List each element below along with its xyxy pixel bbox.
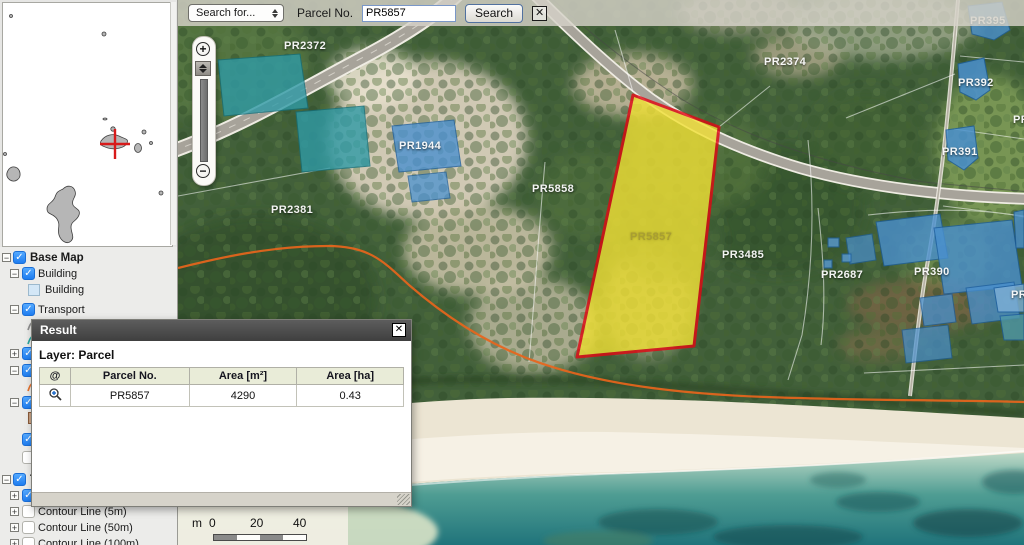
checkbox-checked[interactable]: ✓ bbox=[13, 473, 26, 486]
scale-unit: m bbox=[192, 516, 202, 530]
tree-label-building-legend: Building bbox=[45, 284, 84, 296]
parcel-label: PR3485 bbox=[722, 249, 764, 261]
result-titlebar[interactable]: Result ✕ bbox=[32, 320, 411, 341]
collapse-icon[interactable]: − bbox=[10, 398, 19, 407]
result-table: @ Parcel No. Area [m²] Area [ha] P bbox=[39, 367, 404, 407]
parcel-label: PR392 bbox=[958, 77, 994, 89]
seychelles-overview-svg bbox=[3, 3, 170, 244]
resize-grip-icon[interactable] bbox=[397, 494, 410, 505]
tree-label-contour-100m: Contour Line (100m) bbox=[38, 538, 139, 545]
checkbox-unchecked[interactable] bbox=[22, 537, 35, 545]
result-row: PR5857 4290 0.43 bbox=[40, 385, 404, 407]
parcel-label-clipped: PR bbox=[1011, 289, 1024, 301]
scale-tick: 20 bbox=[250, 516, 263, 530]
checkbox-checked[interactable]: ✓ bbox=[22, 267, 35, 280]
zoom-to-feature-cell[interactable] bbox=[40, 385, 71, 407]
result-layer-label: Layer: Parcel bbox=[39, 348, 404, 362]
parcel-label: PR391 bbox=[942, 146, 978, 158]
collapse-icon[interactable]: − bbox=[2, 475, 11, 484]
search-for-select[interactable]: Search for... bbox=[188, 4, 284, 22]
collapse-icon[interactable]: − bbox=[10, 305, 19, 314]
collapse-icon[interactable]: − bbox=[2, 253, 11, 262]
location-crosshair-icon bbox=[100, 129, 130, 159]
col-area-m2: Area [m²] bbox=[189, 368, 297, 385]
tree-label-contour-5m: Contour Line (5m) bbox=[38, 506, 127, 518]
close-search-icon[interactable]: ✕ bbox=[532, 6, 547, 21]
panel-scrollbar[interactable] bbox=[170, 2, 176, 245]
parcel-label: PR2374 bbox=[764, 56, 806, 68]
checkbox-checked[interactable]: ✓ bbox=[13, 251, 26, 264]
scale-tick: 0 bbox=[209, 516, 216, 530]
zoom-to-feature-icon[interactable] bbox=[48, 387, 62, 401]
collapse-icon[interactable]: − bbox=[10, 366, 19, 375]
result-area-ha: 0.43 bbox=[297, 385, 404, 407]
checkbox-unchecked[interactable] bbox=[22, 521, 35, 534]
zoom-slider-track[interactable] bbox=[200, 79, 208, 162]
tree-legend-building: Building bbox=[0, 283, 177, 298]
parcel-label: PR1944 bbox=[399, 140, 441, 152]
expand-icon[interactable]: + bbox=[10, 507, 19, 516]
zoom-slider: + − bbox=[192, 36, 216, 186]
result-area-m2: 4290 bbox=[189, 385, 297, 407]
parcel-no-label: Parcel No. bbox=[297, 6, 353, 20]
col-area-ha: Area [ha] bbox=[297, 368, 404, 385]
search-for-selected-value: Search for... bbox=[196, 7, 269, 19]
tree-label-transport: Transport bbox=[38, 304, 85, 316]
scale-bar: m 0 20 40 bbox=[178, 506, 348, 545]
result-header-row: @ Parcel No. Area [m²] Area [ha] bbox=[40, 368, 404, 385]
parcel-label: PR2687 bbox=[821, 269, 863, 281]
scale-bar-segments bbox=[213, 534, 307, 541]
zoom-in-button[interactable]: + bbox=[196, 42, 210, 56]
result-window: Result ✕ Layer: Parcel @ Parcel No. Area… bbox=[31, 319, 412, 507]
parcel-label: PR2381 bbox=[271, 204, 313, 216]
col-parcel-no: Parcel No. bbox=[71, 368, 190, 385]
parcel-label: PR5858 bbox=[532, 183, 574, 195]
expand-icon[interactable]: + bbox=[10, 539, 19, 545]
result-title: Result bbox=[40, 323, 77, 337]
selected-parcel-label: PR5857 bbox=[630, 231, 672, 243]
tree-item-contour-5m[interactable]: + Contour Line (5m) bbox=[0, 505, 177, 520]
zoom-slider-handle[interactable] bbox=[195, 61, 211, 76]
search-button[interactable]: Search bbox=[465, 4, 523, 23]
tree-label-building: Building bbox=[38, 268, 77, 280]
scale-tick: 40 bbox=[293, 516, 306, 530]
gis-application: − ✓ Base Map − ✓ Building Building − ✓ T… bbox=[0, 0, 1024, 545]
close-result-icon[interactable]: ✕ bbox=[392, 323, 406, 337]
col-zoom: @ bbox=[40, 368, 71, 385]
tree-label-contour-50m: Contour Line (50m) bbox=[38, 522, 133, 534]
result-body: Layer: Parcel @ Parcel No. Area [m²] Are… bbox=[32, 341, 411, 407]
parcel-label: PR390 bbox=[914, 266, 950, 278]
island-shapes bbox=[4, 15, 164, 243]
tree-item-building[interactable]: − ✓ Building bbox=[0, 267, 177, 282]
tree-item-base-map[interactable]: − ✓ Base Map bbox=[0, 251, 177, 266]
building-legend-swatch bbox=[28, 284, 40, 296]
zoom-out-button[interactable]: − bbox=[196, 164, 210, 178]
expand-icon[interactable]: + bbox=[10, 491, 19, 500]
tree-label-base-map: Base Map bbox=[30, 252, 84, 264]
checkbox-checked[interactable]: ✓ bbox=[22, 303, 35, 316]
tree-item-transport[interactable]: − ✓ Transport bbox=[0, 303, 177, 318]
collapse-icon[interactable]: − bbox=[10, 269, 19, 278]
result-parcel-no: PR5857 bbox=[71, 385, 190, 407]
result-statusbar bbox=[32, 492, 411, 506]
expand-icon[interactable]: + bbox=[10, 349, 19, 358]
parcel-no-input[interactable] bbox=[362, 5, 456, 22]
search-toolbar: Search for... Parcel No. Search ✕ bbox=[178, 0, 1024, 26]
tree-item-contour-100m[interactable]: + Contour Line (100m) bbox=[0, 537, 177, 545]
expand-icon[interactable]: + bbox=[10, 523, 19, 532]
overview-map[interactable] bbox=[2, 2, 173, 247]
select-stepper-icon bbox=[269, 8, 283, 19]
parcel-label: PR2372 bbox=[284, 40, 326, 52]
tree-item-contour-50m[interactable]: + Contour Line (50m) bbox=[0, 521, 177, 536]
parcel-label-clipped: PR bbox=[1013, 114, 1024, 126]
